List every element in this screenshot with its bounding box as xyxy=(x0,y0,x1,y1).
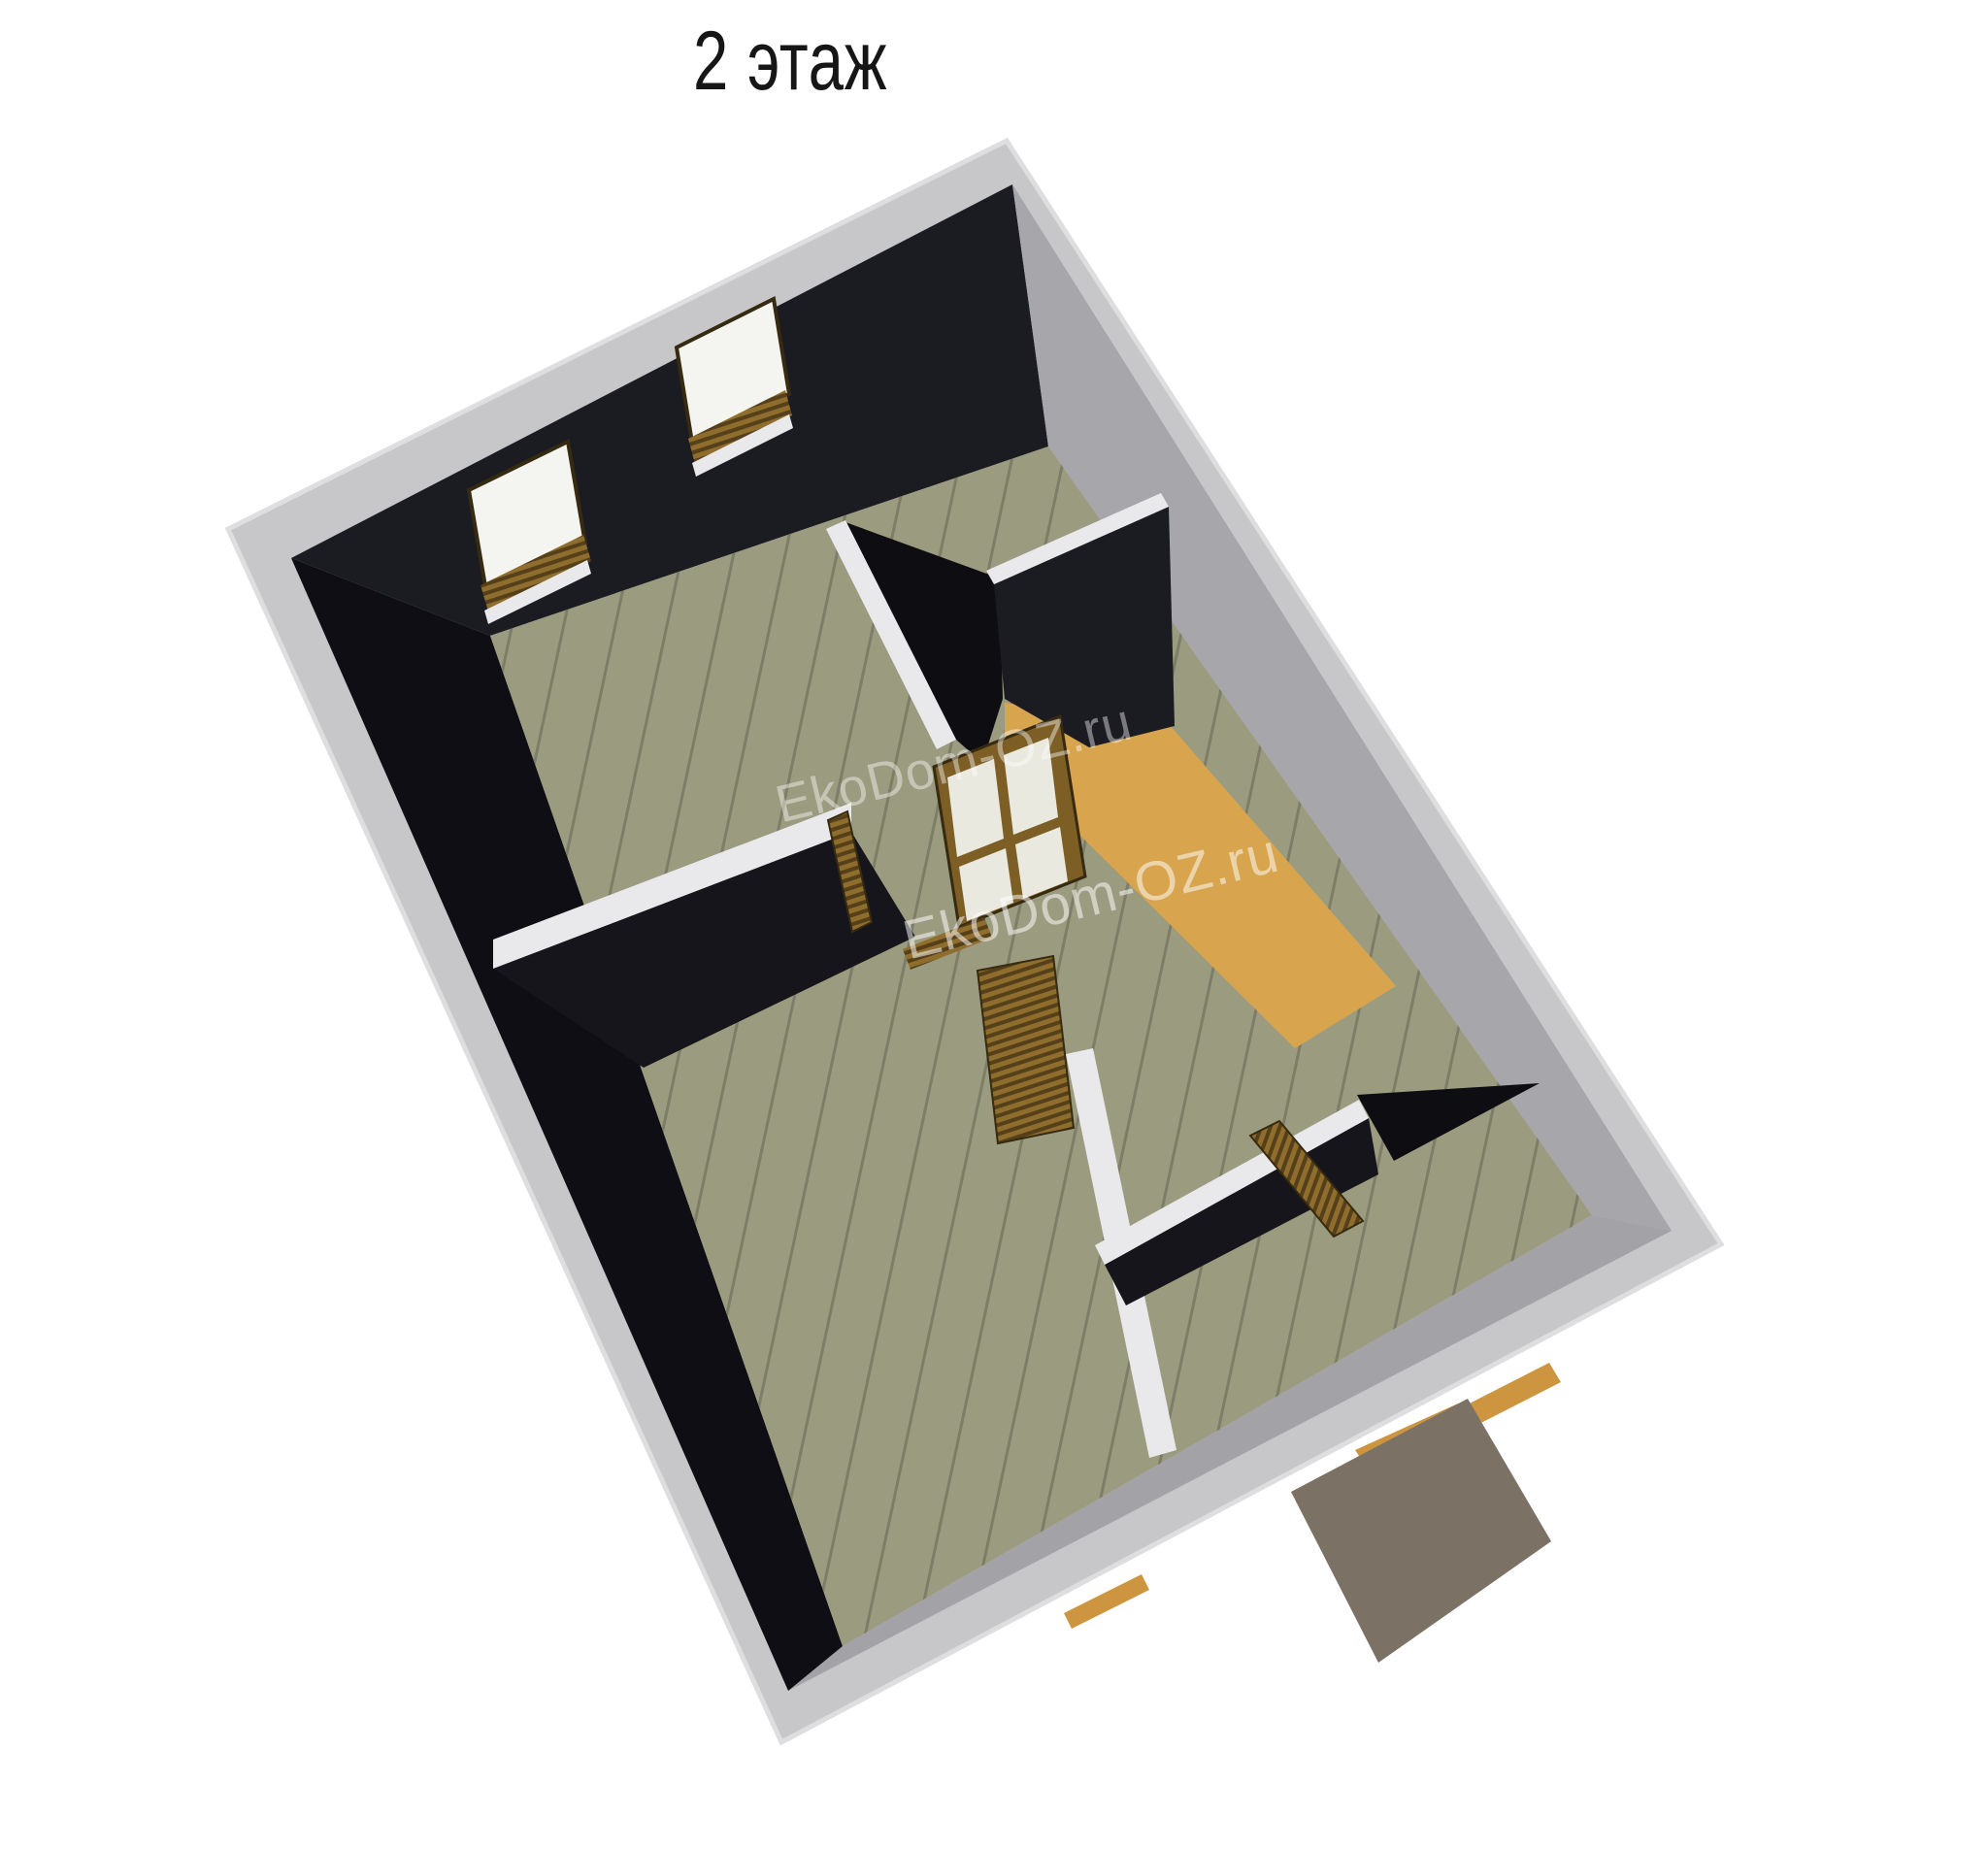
page-title: 2 этаж xyxy=(693,14,887,110)
floor-plan-render: 2 этаж EkoDom-OZ.ru EkoDom-OZ.ru xyxy=(0,0,1988,1849)
floor-plan-svg xyxy=(0,0,1988,1849)
balcony-door-pane-2 xyxy=(1004,738,1058,835)
